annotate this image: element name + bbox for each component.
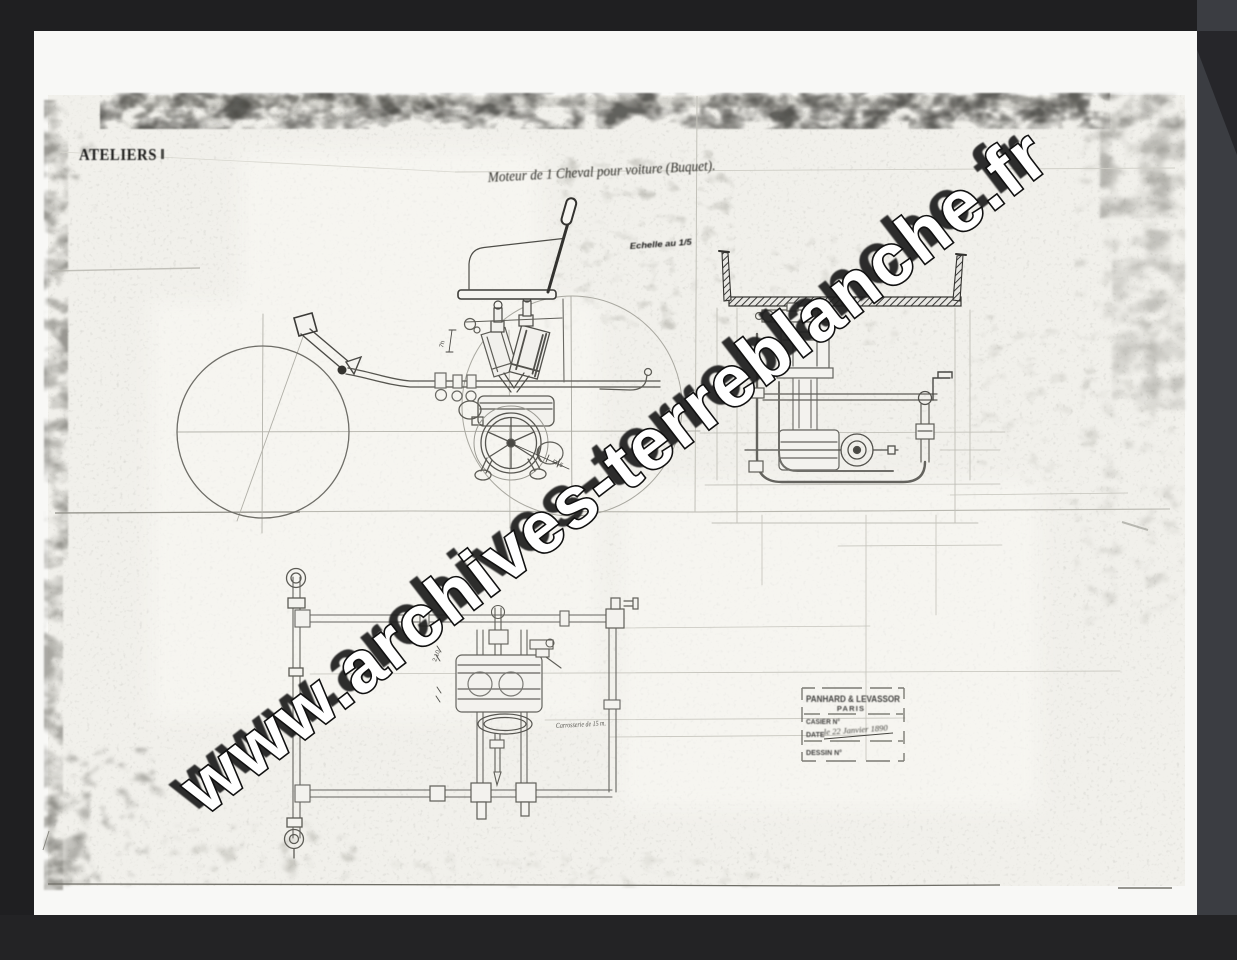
svg-text:PARIS: PARIS <box>837 704 865 713</box>
svg-text:PANHARD & LEVASSOR: PANHARD & LEVASSOR <box>806 694 900 704</box>
svg-text:CASIER N°: CASIER N° <box>806 718 840 726</box>
svg-text:DESSIN N°: DESSIN N° <box>806 749 842 757</box>
svg-text:DATE: DATE <box>806 732 825 739</box>
svg-text:ATELIERS: ATELIERS <box>79 145 157 164</box>
